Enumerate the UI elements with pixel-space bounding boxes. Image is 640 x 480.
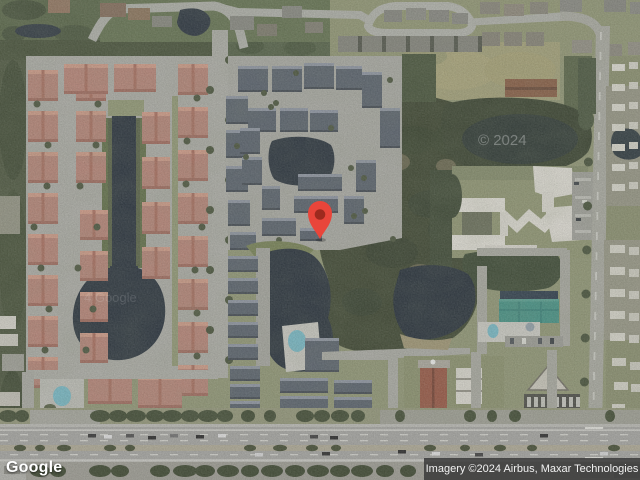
svg-text:© 2024: © 2024 — [478, 132, 527, 149]
svg-text:4 Google: 4 Google — [84, 290, 137, 305]
